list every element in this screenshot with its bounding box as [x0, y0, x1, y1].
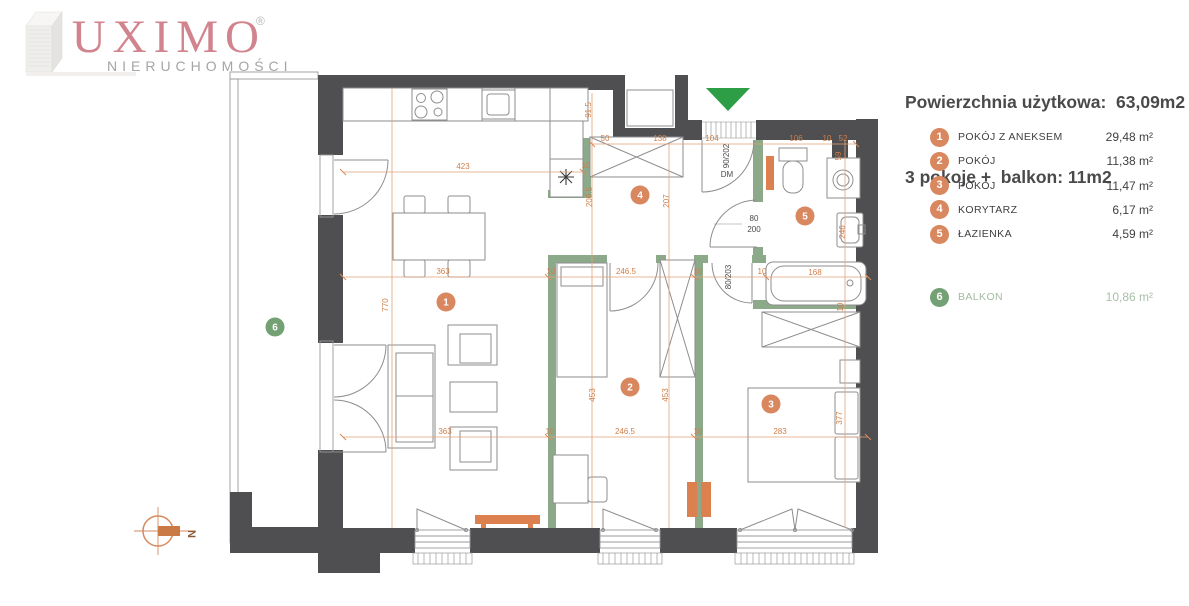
- dimension-label: 206.5: [585, 186, 594, 207]
- legend-badge-2: 2: [930, 152, 949, 171]
- dimension-label: 363: [438, 427, 452, 436]
- legend-label: POKÓJ Z ANEKSEM: [958, 131, 1106, 143]
- shaft-niche: [627, 90, 673, 126]
- legend-badge-5: 5: [930, 225, 949, 244]
- dimension-label: 423: [456, 162, 470, 171]
- toilet-tank: [779, 148, 807, 161]
- room-badge-5: 5: [796, 207, 815, 226]
- svg-text:5: 5: [802, 212, 808, 223]
- door-size-label: DM: [721, 170, 734, 179]
- compass-north-label: N: [185, 530, 197, 538]
- dimension-label: 50: [601, 134, 610, 143]
- door-size-label: 90/202: [722, 143, 731, 168]
- legend-badge-3: 3: [930, 176, 949, 195]
- room-badge-3: 3: [762, 395, 781, 414]
- chair: [404, 260, 425, 277]
- light-symbol: [558, 169, 574, 185]
- dimension-label: 246: [838, 225, 847, 239]
- dimension-label: 10: [547, 267, 556, 276]
- balcony-door-lower: [320, 341, 386, 452]
- desk: [553, 455, 588, 503]
- dimension-label: 106: [789, 134, 803, 143]
- room-badge-1: 1: [437, 293, 456, 312]
- coffee-table: [450, 382, 497, 412]
- dimension-label: 10: [823, 134, 832, 143]
- door-size-label: 80/203: [724, 264, 733, 289]
- dimension-label: 363: [436, 267, 450, 276]
- dimension-label: 246.5: [615, 427, 636, 436]
- legend-badge-4: 4: [930, 200, 949, 219]
- dimension-label: 10: [582, 161, 591, 170]
- dimension-label: 104: [705, 134, 719, 143]
- dimension-label: 168: [808, 268, 822, 277]
- bathroom-fixtures: [766, 148, 866, 305]
- window-room3: [735, 509, 854, 564]
- room-badges: 123456: [266, 186, 815, 414]
- washing-machine: [827, 158, 860, 198]
- radiator: [687, 482, 697, 517]
- dimension-label: 138: [653, 134, 667, 143]
- nightstand: [840, 360, 860, 383]
- dimension-label: 10: [694, 427, 703, 436]
- dimension-label: 453: [588, 388, 597, 402]
- svg-text:4: 4: [637, 191, 643, 202]
- legend-row-2: 2POKÓJ11,38 m²: [930, 151, 1153, 171]
- room-legend: 1POKÓJ Z ANEKSEM29,48 m²2POKÓJ11,38 m²3P…: [930, 127, 1153, 311]
- radiators: [475, 156, 774, 528]
- legend-row-3: 3POKÓJ11,47 m²: [930, 176, 1153, 196]
- dimension-label: 453: [661, 388, 670, 402]
- legend-value: 10,86 m²: [1106, 290, 1153, 304]
- chair: [448, 260, 470, 277]
- legend-badge-6: 6: [930, 288, 949, 307]
- desk-chair: [588, 477, 607, 502]
- entrance-arrow: [706, 88, 750, 111]
- room-badge-6: 6: [266, 318, 285, 337]
- chair: [448, 196, 470, 213]
- dimension-label: 10: [758, 267, 767, 276]
- kitchen-counter: [343, 88, 588, 121]
- svg-text:1: 1: [443, 298, 449, 309]
- living-area: [388, 325, 497, 470]
- legend-row-5: 5ŁAZIENKA4,59 m²: [930, 224, 1153, 244]
- legend-badge-1: 1: [930, 128, 949, 147]
- legend-row-4: 4KORYTARZ6,17 m²: [930, 200, 1153, 220]
- balcony-railing: [230, 72, 318, 543]
- dimension-label: 10: [694, 267, 703, 276]
- legend-value: 11,47 m²: [1107, 179, 1153, 193]
- toilet-bowl: [783, 161, 803, 193]
- dimension-label: 10: [546, 427, 555, 436]
- dimension-label: 770: [381, 298, 390, 312]
- legend-value: 11,38 m²: [1107, 154, 1153, 168]
- dimension-label: 10: [836, 302, 845, 311]
- dimension-label: 52: [839, 134, 848, 143]
- armchair: [448, 325, 497, 365]
- compass-needle: [158, 526, 180, 536]
- kitchen-cabinet: [550, 121, 583, 159]
- legend-label: POKÓJ: [958, 180, 1107, 192]
- dimension-label: 91.5: [584, 102, 593, 118]
- legend-label: BALKON: [958, 291, 1106, 303]
- kitchen: [343, 88, 588, 197]
- svg-text:6: 6: [272, 323, 278, 334]
- radiator: [701, 482, 711, 517]
- legend-row-6: 6BALKON10,86 m²: [930, 287, 1153, 307]
- legend-value: 29,48 m²: [1106, 130, 1153, 144]
- bed-single: [557, 263, 607, 377]
- dimension-label: 59: [834, 151, 843, 160]
- dimension-label: 377: [835, 411, 844, 425]
- room-badge-2: 2: [621, 378, 640, 397]
- legend-label: KORYTARZ: [958, 204, 1112, 216]
- svg-text:2: 2: [627, 383, 633, 394]
- dining-table: [393, 213, 485, 260]
- legend-label: POKÓJ: [958, 155, 1107, 167]
- brand-logo: [20, 8, 140, 93]
- window-living: [413, 509, 472, 564]
- room-badge-4: 4: [631, 186, 650, 205]
- dimension-label: 246.5: [616, 267, 637, 276]
- dimension-label: 283: [773, 427, 787, 436]
- radiator: [475, 515, 540, 524]
- legend-value: 4,59 m²: [1112, 227, 1153, 241]
- area-summary-line1: Powierzchnia użytkowa: 63,09m2: [905, 90, 1185, 115]
- armchair: [450, 427, 497, 470]
- legend-label: ŁAZIENKA: [958, 228, 1112, 240]
- dining-set: [393, 196, 485, 277]
- svg-text:3: 3: [768, 400, 774, 411]
- dimension-label: 207: [662, 194, 671, 208]
- radiator: [766, 156, 774, 190]
- door-size-label: 200: [747, 225, 761, 234]
- bathroom-door: [710, 200, 757, 247]
- door-size-label: 80: [750, 214, 759, 223]
- legend-row-1: 1POKÓJ Z ANEKSEM29,48 m²: [930, 127, 1153, 147]
- balcony-door-upper: [320, 155, 388, 217]
- chair: [404, 196, 425, 213]
- window-room2: [598, 509, 662, 564]
- brand-building-icon: [20, 8, 140, 88]
- legend-value: 6,17 m²: [1112, 203, 1153, 217]
